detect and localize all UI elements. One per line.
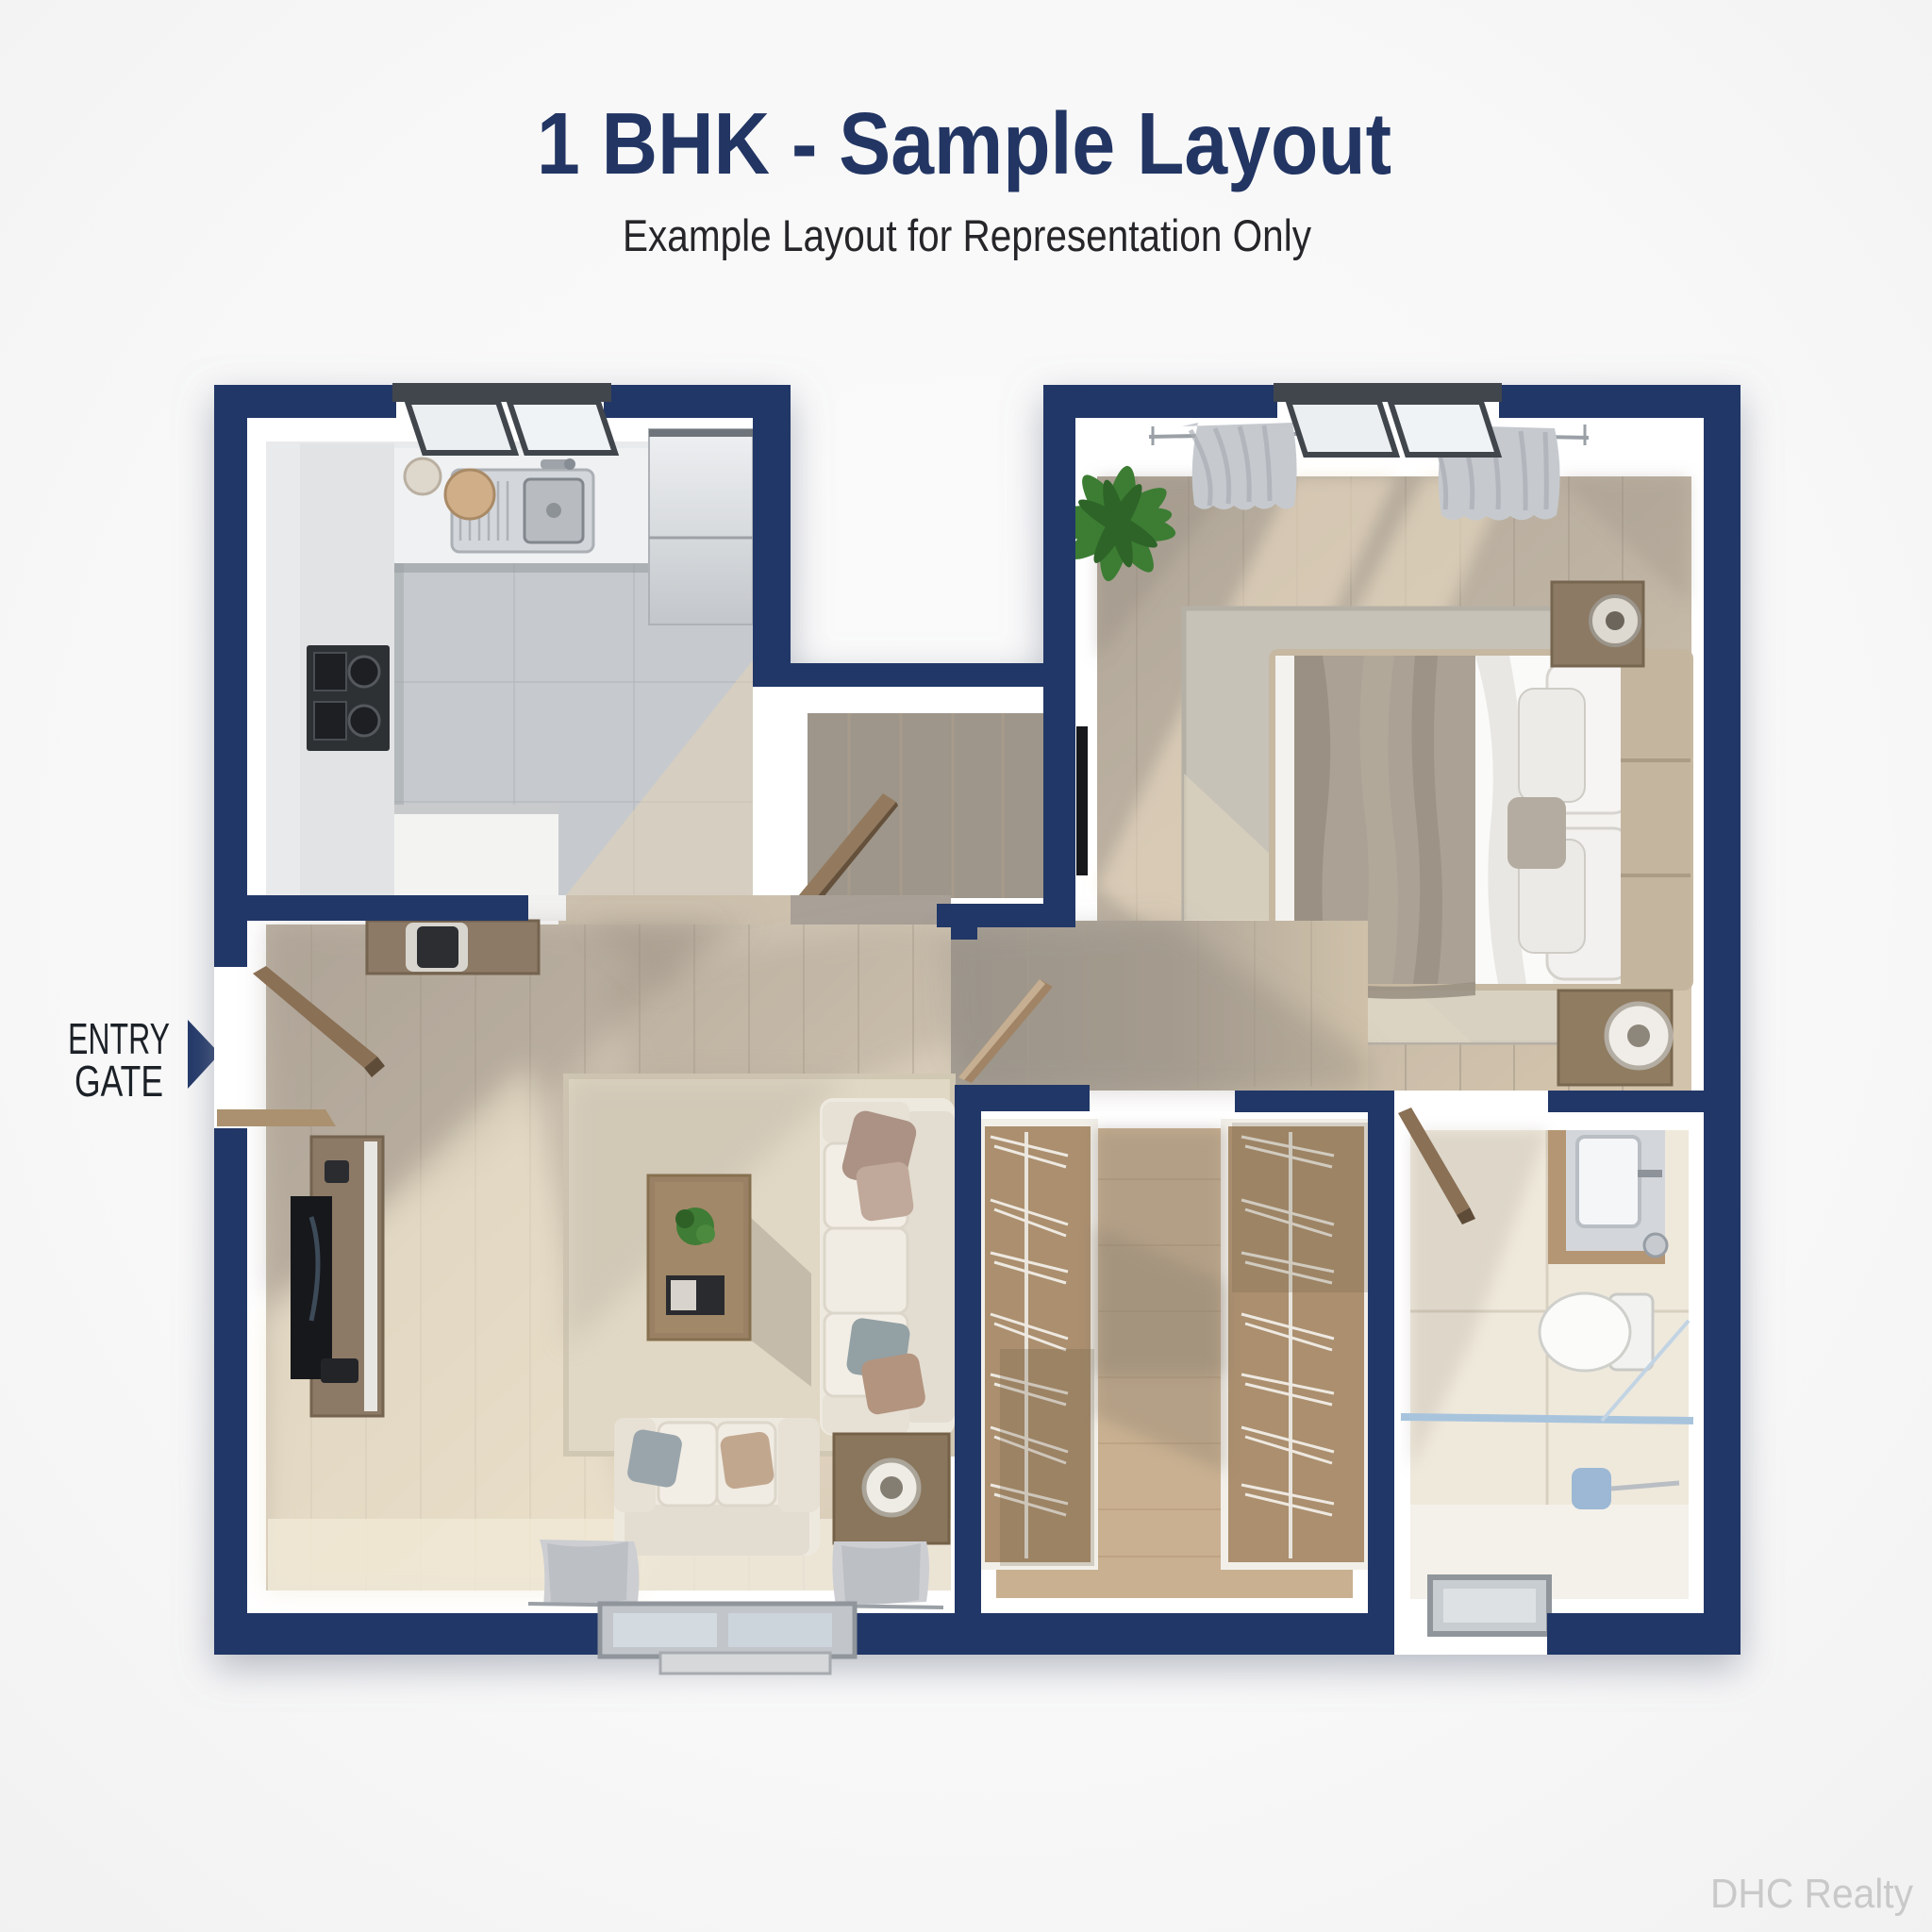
svg-text:1 BHK - Sample Layout: 1 BHK - Sample Layout xyxy=(537,94,1391,192)
svg-text:GATE: GATE xyxy=(75,1057,163,1106)
svg-text:Example Layout for Representat: Example Layout for Representation Only xyxy=(623,210,1311,260)
svg-text:DHC Realty: DHC Realty xyxy=(1710,1871,1913,1917)
